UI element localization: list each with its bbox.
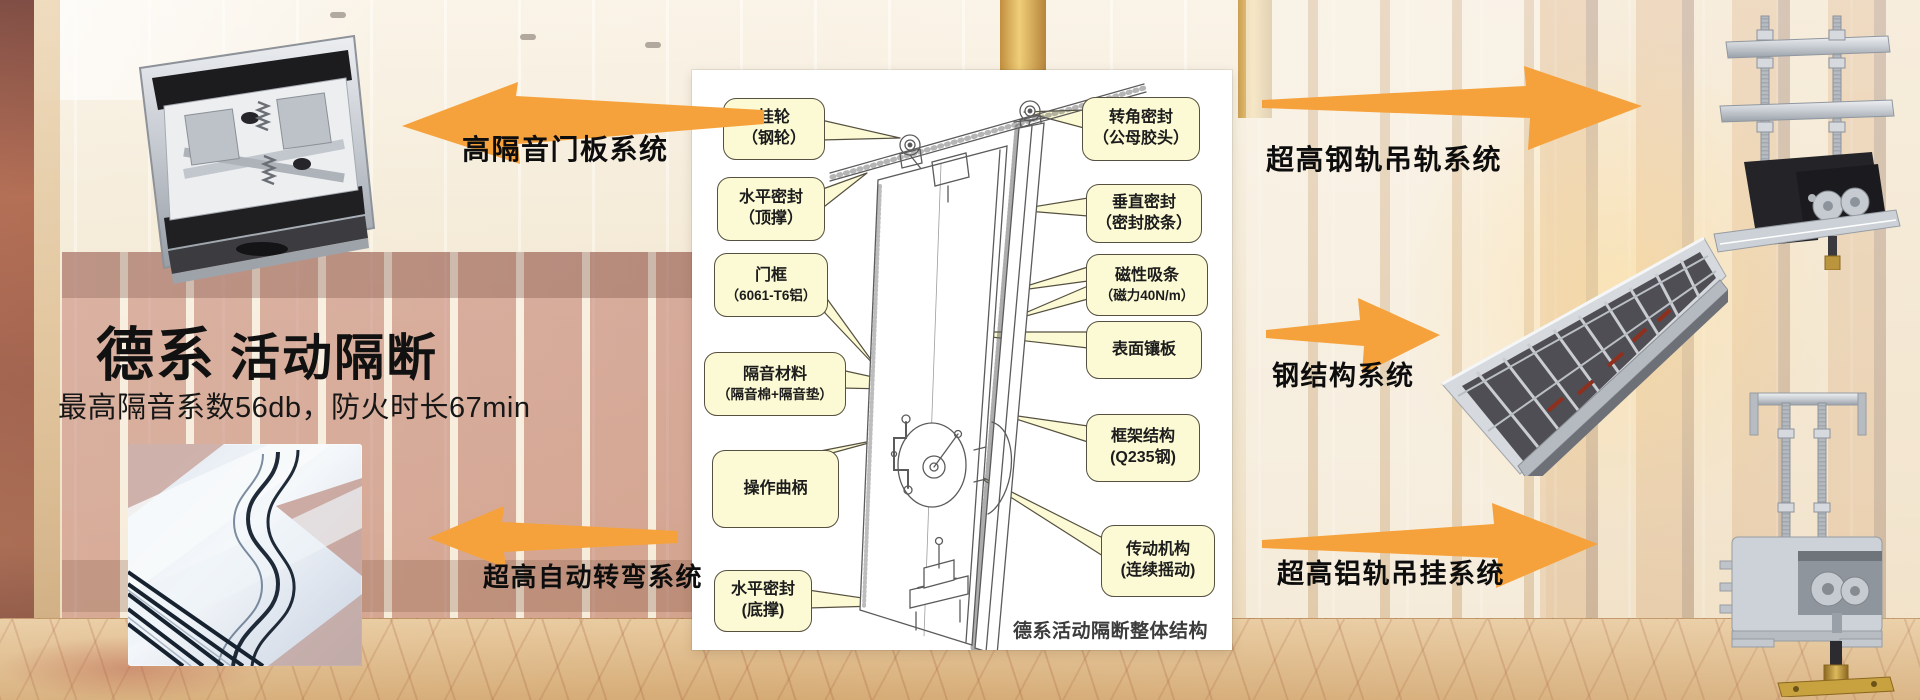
steel-rail-system-label: 超高钢轨吊轨系统 bbox=[1266, 138, 1502, 178]
door-panel-system-label: 高隔音门板系统 bbox=[462, 128, 669, 168]
callout-text-line: 磁性吸条 bbox=[1115, 266, 1179, 287]
spec-subtitle: 最高隔音系数56db，防火时长67min bbox=[58, 384, 531, 426]
callout-horizontal-seal-bottom: 水平密封 (底撑) bbox=[714, 570, 812, 632]
callout-surface-panel: 表面镶板 bbox=[1086, 321, 1202, 379]
product-title: 活动隔断 bbox=[230, 330, 438, 386]
callout-horizontal-seal-top: 水平密封 （顶撑） bbox=[717, 177, 825, 241]
callout-text-line: 水平密封 bbox=[731, 580, 795, 601]
page-title: 德系活动隔断 bbox=[96, 308, 438, 392]
callout-text-line: 框架结构 bbox=[1111, 427, 1175, 448]
door-panel-photo bbox=[112, 6, 387, 296]
callout-text-line: （公母胶头） bbox=[1093, 129, 1189, 150]
brand-title: 德系 bbox=[96, 323, 216, 388]
callout-text-line: 传动机构 bbox=[1126, 540, 1190, 561]
callout-transmission: 传动机构 (连续摇动) bbox=[1101, 525, 1215, 597]
ceiling-downlight bbox=[520, 34, 536, 40]
callout-corner-seal: 转角密封 （公母胶头） bbox=[1082, 97, 1200, 161]
callout-text-line: （磁力40N/m） bbox=[1100, 287, 1195, 305]
callout-text-line: 垂直密封 bbox=[1112, 193, 1176, 214]
callout-text-line: （隔音棉+隔音垫） bbox=[717, 386, 833, 404]
alu-rail-system-label: 超高铝轨吊挂系统 bbox=[1277, 552, 1505, 591]
auto-turn-system-label: 超高自动转弯系统 bbox=[483, 557, 703, 594]
steel-structure-system-label: 钢结构系统 bbox=[1272, 354, 1415, 393]
callout-text-line: 门框 bbox=[755, 266, 787, 287]
callout-text-line: (连续摇动) bbox=[1121, 561, 1196, 582]
callout-magnetic-strip: 磁性吸条 （磁力40N/m） bbox=[1086, 254, 1208, 316]
callout-text-line: （6061-T6铝） bbox=[726, 287, 817, 305]
callout-text-line: (Q235钢) bbox=[1110, 448, 1176, 469]
callout-text-line: 操作曲柄 bbox=[743, 479, 807, 500]
callout-text-line: （密封胶条） bbox=[1096, 214, 1192, 235]
callout-frame-structure: 框架结构 (Q235钢) bbox=[1086, 414, 1200, 482]
aluminum-track-photo bbox=[1694, 385, 1906, 697]
callout-text-line: (底撑) bbox=[742, 601, 785, 622]
ceiling-downlight bbox=[645, 42, 661, 48]
steel-structure-photo bbox=[1428, 226, 1728, 476]
partition-system-infographic: 高隔音门板系统 超高自动转弯系统 超高钢轨吊轨系统 钢结构系统 超高铝轨吊挂系统… bbox=[0, 0, 1920, 700]
callout-sound-insulation: 隔音材料 （隔音棉+隔音垫） bbox=[704, 352, 846, 416]
diagram-caption: 德系活动隔断整体结构 bbox=[1013, 616, 1208, 643]
callout-vertical-seal: 垂直密封 （密封胶条） bbox=[1086, 184, 1202, 243]
curve-track-photo bbox=[128, 444, 362, 666]
callout-text-line: 转角密封 bbox=[1109, 108, 1173, 129]
callout-text-line: 隔音材料 bbox=[743, 365, 807, 386]
callout-operating-crank: 操作曲柄 bbox=[712, 450, 839, 528]
diagram-panel: 挂轮 （钢轮） 水平密封 （顶撑） 门框 （6061-T6铝） 隔音材料 （隔音… bbox=[692, 70, 1232, 650]
callout-text-line: （顶撑） bbox=[739, 209, 803, 230]
steel-trolley-photo bbox=[1700, 2, 1910, 270]
callout-door-frame: 门框 （6061-T6铝） bbox=[714, 253, 828, 317]
callout-text-line: 表面镶板 bbox=[1112, 340, 1176, 361]
callout-text-line: 水平密封 bbox=[739, 188, 803, 209]
